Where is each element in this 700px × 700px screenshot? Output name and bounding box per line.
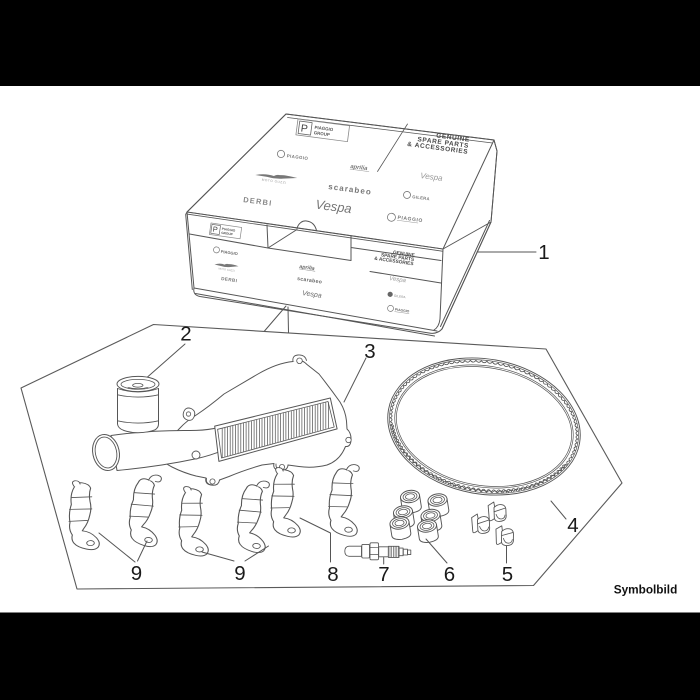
svg-text:9: 9 xyxy=(131,562,142,585)
svg-text:4: 4 xyxy=(567,514,578,537)
svg-text:8: 8 xyxy=(327,563,338,586)
svg-text:5: 5 xyxy=(502,563,513,586)
svg-text:1: 1 xyxy=(538,241,549,264)
svg-text:7: 7 xyxy=(378,563,389,586)
svg-text:2: 2 xyxy=(180,323,191,346)
svg-text:Symbolbild: Symbolbild xyxy=(614,583,678,597)
svg-text:6: 6 xyxy=(444,563,455,586)
svg-text:3: 3 xyxy=(364,340,375,363)
svg-text:9: 9 xyxy=(234,562,245,585)
